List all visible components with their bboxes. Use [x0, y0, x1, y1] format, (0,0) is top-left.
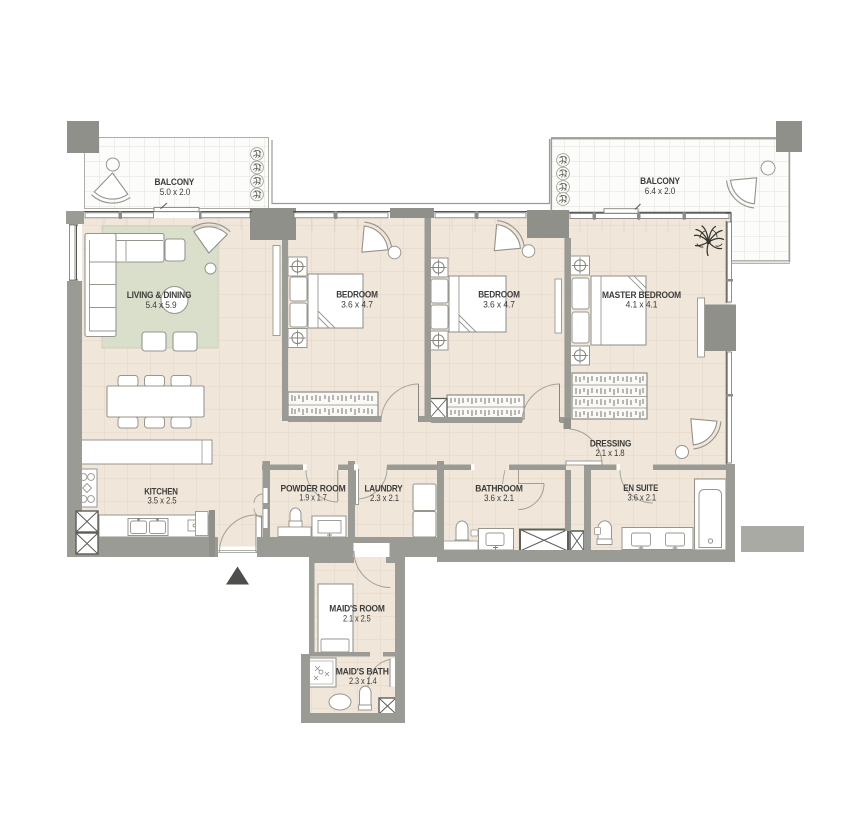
svg-text:BALCONY: BALCONY: [154, 177, 194, 187]
svg-text:3.6 x 2.1: 3.6 x 2.1: [484, 493, 514, 503]
svg-text:LAUNDRY: LAUNDRY: [364, 484, 402, 494]
svg-text:4.1 x 4.1: 4.1 x 4.1: [626, 300, 658, 310]
svg-text:DRESSING: DRESSING: [590, 439, 631, 449]
svg-text:2.1 x 2.5: 2.1 x 2.5: [343, 614, 371, 624]
svg-text:3.6 x 2.1: 3.6 x 2.1: [628, 493, 657, 503]
svg-text:6.4 x 2.0: 6.4 x 2.0: [645, 186, 675, 196]
svg-text:3.5 x 2.5: 3.5 x 2.5: [148, 496, 177, 506]
svg-text:EN SUITE: EN SUITE: [623, 483, 658, 493]
svg-text:1.9 x 1.7: 1.9 x 1.7: [299, 493, 327, 503]
svg-text:BALCONY: BALCONY: [640, 176, 680, 186]
svg-text:2.3 x 1.4: 2.3 x 1.4: [349, 676, 377, 686]
svg-text:3.6 x 4.7: 3.6 x 4.7: [483, 300, 515, 310]
svg-text:LIVING & DINING: LIVING & DINING: [127, 290, 192, 300]
svg-text:2.3 x 2.1: 2.3 x 2.1: [370, 493, 399, 503]
svg-text:BEDROOM: BEDROOM: [336, 290, 378, 300]
svg-text:MAID'S BATH: MAID'S BATH: [336, 667, 390, 677]
svg-text:5.0 x 2.0: 5.0 x 2.0: [160, 187, 190, 197]
svg-text:MAID'S ROOM: MAID'S ROOM: [329, 604, 385, 614]
svg-text:5.4 x 5.9: 5.4 x 5.9: [146, 300, 177, 310]
svg-text:2.1 x 1.8: 2.1 x 1.8: [596, 448, 625, 458]
svg-text:3.6 x 4.7: 3.6 x 4.7: [341, 300, 373, 310]
svg-text:BEDROOM: BEDROOM: [478, 290, 520, 300]
svg-text:MASTER BEDROOM: MASTER BEDROOM: [602, 290, 681, 300]
